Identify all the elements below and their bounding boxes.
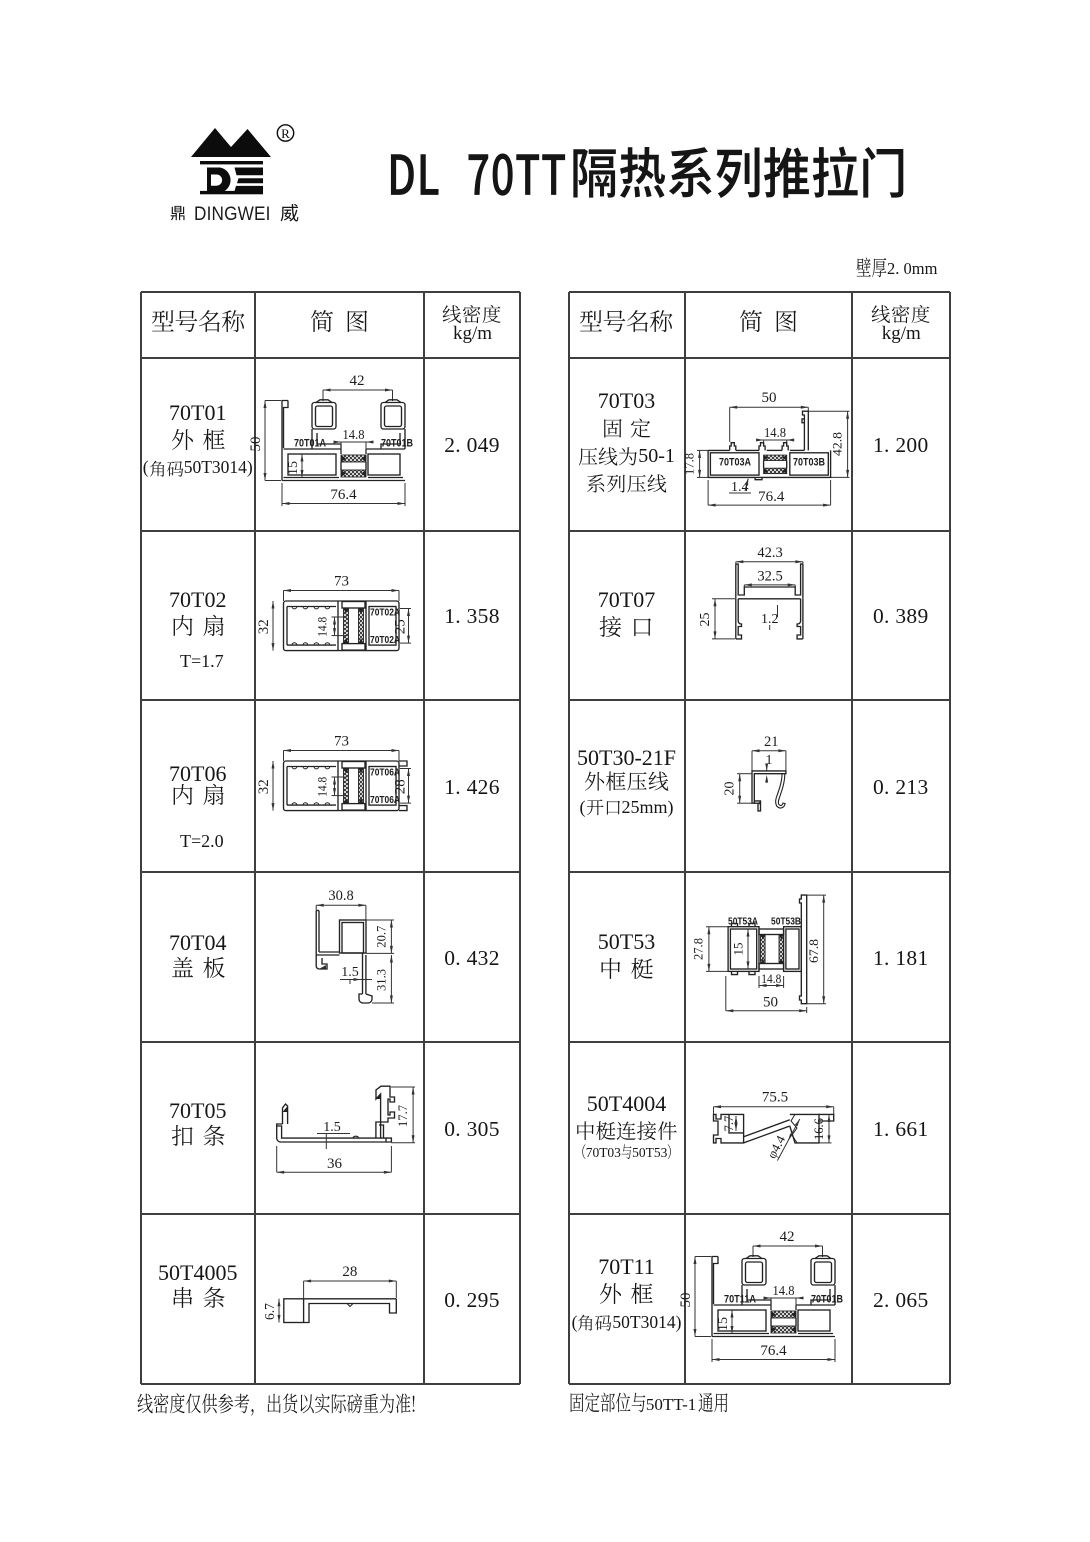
svg-text:70T01A: 70T01A: [294, 438, 326, 450]
svg-text:70T03B: 70T03B: [793, 457, 825, 469]
svg-text:76.4: 76.4: [330, 487, 357, 503]
svg-text:27.8: 27.8: [691, 938, 705, 960]
svg-text:73: 73: [334, 734, 349, 750]
svg-text:42.8: 42.8: [829, 432, 844, 456]
svg-text:70T06A: 70T06A: [370, 767, 400, 779]
svg-text:6.7: 6.7: [262, 1302, 277, 1319]
svg-text:25: 25: [393, 619, 409, 634]
svg-text:17.7: 17.7: [396, 1105, 410, 1127]
svg-text:50: 50: [248, 437, 264, 452]
svg-text:15: 15: [730, 943, 745, 956]
svg-text:1.2: 1.2: [760, 612, 778, 627]
svg-text:7.7: 7.7: [722, 1116, 736, 1132]
svg-text:28: 28: [342, 1264, 357, 1280]
svg-text:75.5: 75.5: [761, 1090, 787, 1106]
svg-text:R: R: [281, 126, 290, 141]
svg-text:14.8: 14.8: [316, 616, 330, 636]
svg-text:20: 20: [722, 782, 737, 796]
svg-text:70T02A: 70T02A: [370, 634, 400, 646]
svg-text:42: 42: [779, 1229, 794, 1245]
svg-text:32: 32: [256, 619, 272, 634]
svg-text:50: 50: [678, 1292, 694, 1307]
svg-text:70T01B: 70T01B: [811, 1293, 843, 1305]
svg-text:15: 15: [716, 1317, 731, 1331]
svg-text:76.4: 76.4: [760, 1343, 787, 1359]
svg-text:16.6: 16.6: [812, 1118, 826, 1140]
svg-text:1.5: 1.5: [341, 965, 359, 980]
svg-text:20.7: 20.7: [375, 926, 389, 948]
svg-text:14.8: 14.8: [343, 427, 365, 442]
svg-text:31.3: 31.3: [375, 969, 389, 991]
svg-text:14.8: 14.8: [316, 777, 330, 797]
svg-text:36: 36: [327, 1156, 343, 1172]
svg-text:50: 50: [763, 995, 778, 1011]
svg-text:70T03A: 70T03A: [719, 457, 751, 469]
svg-text:25: 25: [698, 612, 713, 626]
svg-text:42: 42: [350, 373, 365, 389]
svg-text:17.8: 17.8: [682, 453, 696, 475]
svg-text:70T02A: 70T02A: [370, 606, 400, 618]
svg-text:67.8: 67.8: [806, 939, 821, 963]
svg-text:30.8: 30.8: [328, 888, 353, 904]
svg-text:15: 15: [286, 461, 301, 475]
svg-text:73: 73: [334, 573, 349, 589]
svg-text:28: 28: [393, 779, 409, 794]
svg-text:42.3: 42.3: [757, 545, 782, 561]
svg-text:1.5: 1.5: [323, 1120, 341, 1135]
svg-text:14.8: 14.8: [764, 425, 786, 440]
svg-text:14.8: 14.8: [772, 1283, 794, 1298]
svg-text:32.5: 32.5: [757, 568, 782, 584]
svg-text:21: 21: [764, 734, 779, 750]
svg-text:70T06A: 70T06A: [370, 794, 400, 806]
svg-text:32: 32: [256, 779, 272, 794]
svg-text:50T53A: 50T53A: [728, 916, 758, 928]
svg-text:76.4: 76.4: [758, 489, 785, 505]
svg-text:14.8: 14.8: [761, 972, 781, 986]
svg-text:70T01B: 70T01B: [381, 438, 413, 450]
svg-text:70T11A: 70T11A: [724, 1293, 756, 1305]
svg-text:50: 50: [761, 390, 776, 406]
svg-text:50T53B: 50T53B: [771, 916, 801, 928]
